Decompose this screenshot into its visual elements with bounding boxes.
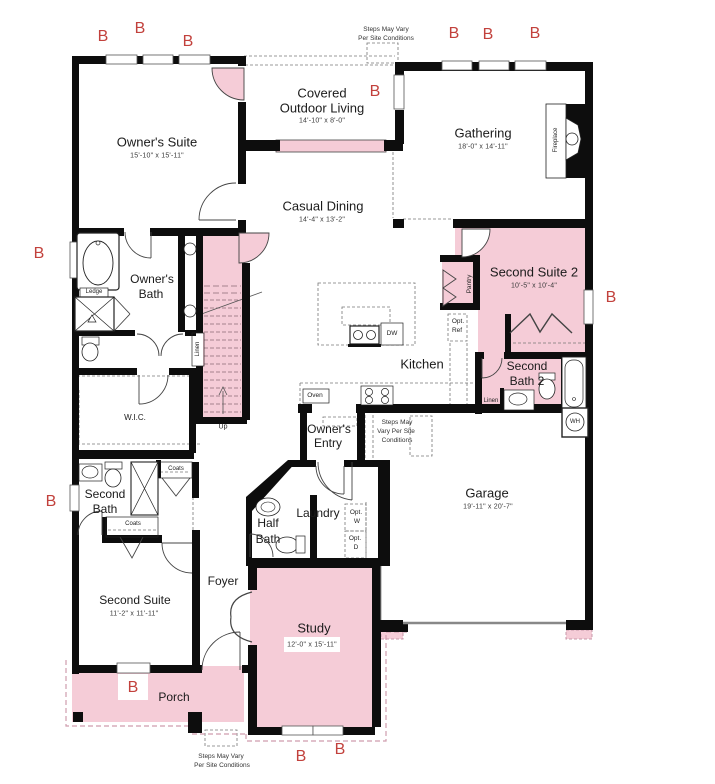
- opt-dryer-label-1: Opt.: [349, 536, 361, 543]
- window: [117, 663, 150, 673]
- door-arc: [125, 232, 151, 258]
- window: [515, 61, 546, 70]
- second-suite2-closet-floor: [478, 308, 588, 354]
- room-label-gathering: Gathering: [454, 127, 511, 140]
- room-label-wic: W.I.C.: [124, 414, 146, 422]
- room-dims-casual-dining: 14'-4" x 13'-2": [299, 217, 345, 224]
- opt-dryer-label-2: D: [354, 545, 359, 552]
- window: [106, 55, 137, 64]
- water-heater-label: WH: [570, 419, 580, 425]
- coats-label: Coats: [168, 466, 184, 472]
- window: [179, 55, 210, 64]
- room-label-owners-entry-2: Entry: [314, 437, 342, 449]
- room-dims-second-suite: 11'-2" x 11'-11": [110, 611, 159, 618]
- toilet: [105, 469, 121, 487]
- option-marker-b: B: [335, 741, 346, 759]
- room-label-second-suite: Second Suite: [99, 594, 170, 606]
- room-dims-gathering: 18'-0" x 14'-11": [458, 144, 508, 151]
- option-marker-b: B: [483, 26, 494, 44]
- sink: [82, 466, 98, 478]
- study-double-doors: [231, 592, 252, 642]
- steps-note-top-2: Per Site Conditions: [358, 36, 414, 43]
- room-label-covered-outdoor-1: Covered: [297, 87, 346, 100]
- window: [394, 75, 404, 109]
- steps-note-mid-3: Conditions: [382, 438, 413, 445]
- door-arc: [202, 632, 240, 670]
- floor-plan-page: Owner's Suite 15'-10" x 15'-11" Covered …: [0, 0, 715, 784]
- sink: [184, 243, 196, 255]
- window: [143, 55, 173, 64]
- room-label-covered-outdoor-2: Outdoor Living: [280, 102, 365, 115]
- option-marker-b: B: [370, 83, 381, 101]
- steps-note-mid-1: Steps May: [382, 420, 413, 427]
- room-dims-second-suite2: 10'-5" x 10'-4": [511, 283, 557, 290]
- sink: [184, 305, 196, 317]
- door-fan-pink: [212, 68, 244, 100]
- room-label-owners-entry-1: Owner's: [307, 423, 351, 435]
- room-label-second-bath2-1: Second: [507, 360, 548, 372]
- room-label-laundry: Laundry: [296, 507, 339, 519]
- option-marker-b: B: [46, 493, 57, 511]
- room-label-second-suite2: Second Suite 2: [490, 266, 578, 279]
- steps-box-top: [367, 43, 398, 63]
- steps-note-top-1: Steps May Vary: [363, 27, 408, 34]
- room-label-study: Study: [297, 622, 330, 635]
- linen-label: Linen: [195, 342, 201, 357]
- option-marker-b: B: [128, 679, 139, 697]
- toilet-tank: [105, 462, 122, 469]
- fireplace-label: Fireplace: [553, 128, 559, 153]
- window: [442, 61, 472, 70]
- steps-box-bottom: [205, 730, 237, 746]
- opt-washer-label-1: Opt.: [350, 510, 362, 517]
- toilet: [82, 343, 98, 361]
- room-label-half-bath-1: Half: [257, 517, 278, 529]
- up-label: Up: [219, 424, 228, 431]
- room-label-casual-dining: Casual Dining: [283, 200, 364, 213]
- sink: [367, 331, 376, 340]
- door-arc: [161, 334, 183, 356]
- room-label-porch: Porch: [158, 691, 189, 703]
- option-marker-b: B: [449, 25, 460, 43]
- coats-label: Coats: [125, 521, 141, 527]
- opt-ref-label-1: Opt.: [452, 319, 464, 326]
- floorplan-drawing: [0, 0, 715, 784]
- garage-stoop-right: [566, 630, 592, 639]
- linen-label: Linen: [484, 398, 499, 404]
- coats-closet: [106, 517, 158, 537]
- room-label-half-bath-2: Bath: [256, 533, 281, 545]
- sink: [509, 393, 527, 405]
- option-marker-b: B: [135, 20, 146, 38]
- window: [479, 61, 509, 70]
- room-label-kitchen: Kitchen: [400, 358, 443, 371]
- oven-label: Oven: [307, 393, 323, 400]
- stairs-floor: [203, 232, 242, 418]
- room-label-owners-bath-1: Owner's: [130, 273, 174, 285]
- door-arc: [137, 334, 159, 356]
- door-arc: [139, 375, 168, 404]
- room-label-owners-suite: Owner's Suite: [117, 136, 198, 149]
- door-arc: [162, 543, 192, 573]
- window: [584, 290, 593, 324]
- room-label-garage: Garage: [465, 487, 508, 500]
- option-marker-b: B: [98, 28, 109, 46]
- option-marker-b: B: [183, 33, 194, 51]
- sink: [354, 331, 363, 340]
- closet-door-v: [162, 478, 190, 496]
- door-fan-pink: [239, 233, 269, 263]
- room-label-owners-bath-2: Bath: [139, 288, 164, 300]
- steps-note-bottom-2: Per Site Conditions: [194, 763, 250, 770]
- room-label-second-bath-1: Second: [85, 488, 126, 500]
- option-marker-b: B: [34, 245, 45, 263]
- opt-washer-label-2: W: [354, 519, 360, 526]
- door-arc: [318, 462, 352, 500]
- room-dims-study: 12'-0" x 15'-11": [287, 642, 337, 649]
- door-arc: [199, 183, 236, 220]
- dishwasher-label: DW: [387, 331, 398, 338]
- steps-note-bottom-1: Steps May Vary: [198, 754, 243, 761]
- option-marker-b: B: [296, 748, 307, 766]
- room-label-second-bath-2: Bath: [93, 503, 118, 515]
- toilet-tank: [296, 536, 305, 553]
- window: [313, 726, 343, 735]
- ledge-label: Ledge: [86, 289, 103, 295]
- opt-ref-label-2: Ref: [452, 328, 462, 335]
- room-dims-covered-outdoor: 14'-10" x 8'-0": [299, 118, 345, 125]
- window: [282, 726, 313, 735]
- option-marker-b: B: [606, 289, 617, 307]
- pantry-label: Pantry: [467, 275, 474, 294]
- room-dims-garage: 19'-11" x 20'-7": [463, 504, 513, 511]
- window: [70, 485, 79, 511]
- shower-door: [114, 297, 130, 331]
- steps-box-mid: [410, 416, 432, 456]
- room-dims-owners-suite: 15'-10" x 15'-11": [130, 153, 184, 160]
- room-label-second-bath2-2: Bath 2: [510, 375, 545, 387]
- room-label-foyer: Foyer: [208, 575, 239, 587]
- option-marker-b: B: [530, 25, 541, 43]
- steps-note-mid-2: Vary Per Site: [377, 429, 415, 436]
- sliding-door: [276, 140, 386, 152]
